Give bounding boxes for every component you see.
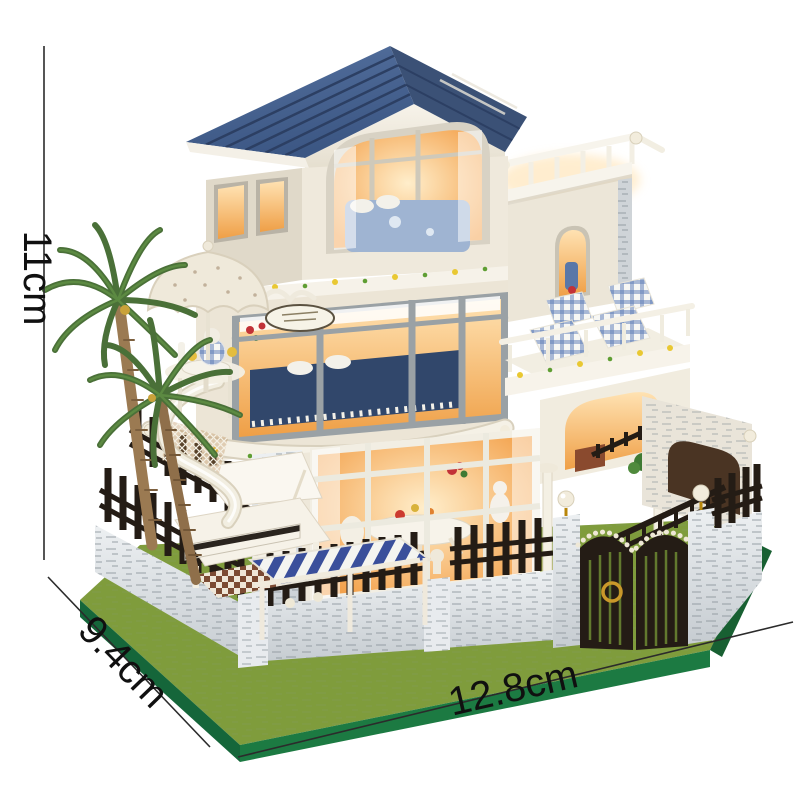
pearl-lamp <box>558 491 574 507</box>
product-photo: 11cm 9.4cm 12.8cm <box>0 0 800 800</box>
pearl-lamp <box>693 485 709 501</box>
gate-door-left <box>580 536 633 650</box>
height-dimension-label: 11cm <box>15 231 59 326</box>
screenshot-root: 11cm 9.4cm 12.8cm <box>0 0 800 800</box>
gate-door-right <box>636 535 688 650</box>
duck-figure <box>227 347 237 357</box>
arch-window <box>326 122 490 254</box>
